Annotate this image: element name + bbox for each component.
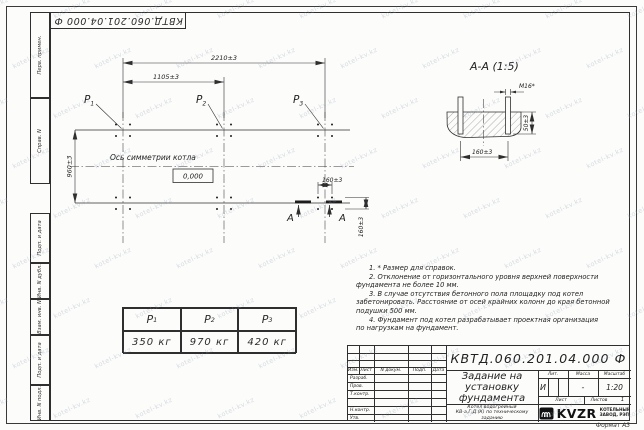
section-view: А-А (1:5) М16* 160±3 50±3 [447, 60, 536, 161]
section-dim-width: 160±3 [472, 149, 492, 156]
dim-bolt-h: 160±3 [322, 177, 342, 184]
drawing-sheet: Перв. примен. Справ. N Подп. и дата Инв.… [0, 0, 644, 430]
point-label-p3: Р3 [293, 94, 303, 108]
cut-label-left: А [286, 213, 294, 224]
point-label-p1: Р1 [84, 94, 94, 108]
dim-depth: 960±3 [66, 156, 74, 178]
section-dim-height: 50±3 [523, 115, 530, 132]
section-title: А-А (1:5) [469, 60, 519, 73]
drawing-canvas: 2210±3 1105±3 960±3 Р1 Р2 Р3 Ось симметр… [0, 0, 644, 430]
dim-half: 1105±3 [153, 73, 179, 81]
dim-bolt-v: 160±3 [358, 217, 365, 237]
axis-label: Ось симметрии котла [110, 153, 196, 162]
point-label-p2: Р2 [196, 94, 206, 108]
level-mark: 0,000 [183, 173, 204, 181]
anchor-bolt-left [458, 97, 463, 134]
plan-view: 2210±3 1105±3 960±3 Р1 Р2 Р3 Ось симметр… [66, 54, 370, 243]
dim-total: 2210±3 [211, 54, 237, 62]
anchor-bolt-right [506, 97, 511, 134]
cut-label-right: А [338, 213, 346, 224]
section-cut-marks: А А [286, 201, 346, 225]
bolt-thread-label: М16* [519, 83, 535, 90]
